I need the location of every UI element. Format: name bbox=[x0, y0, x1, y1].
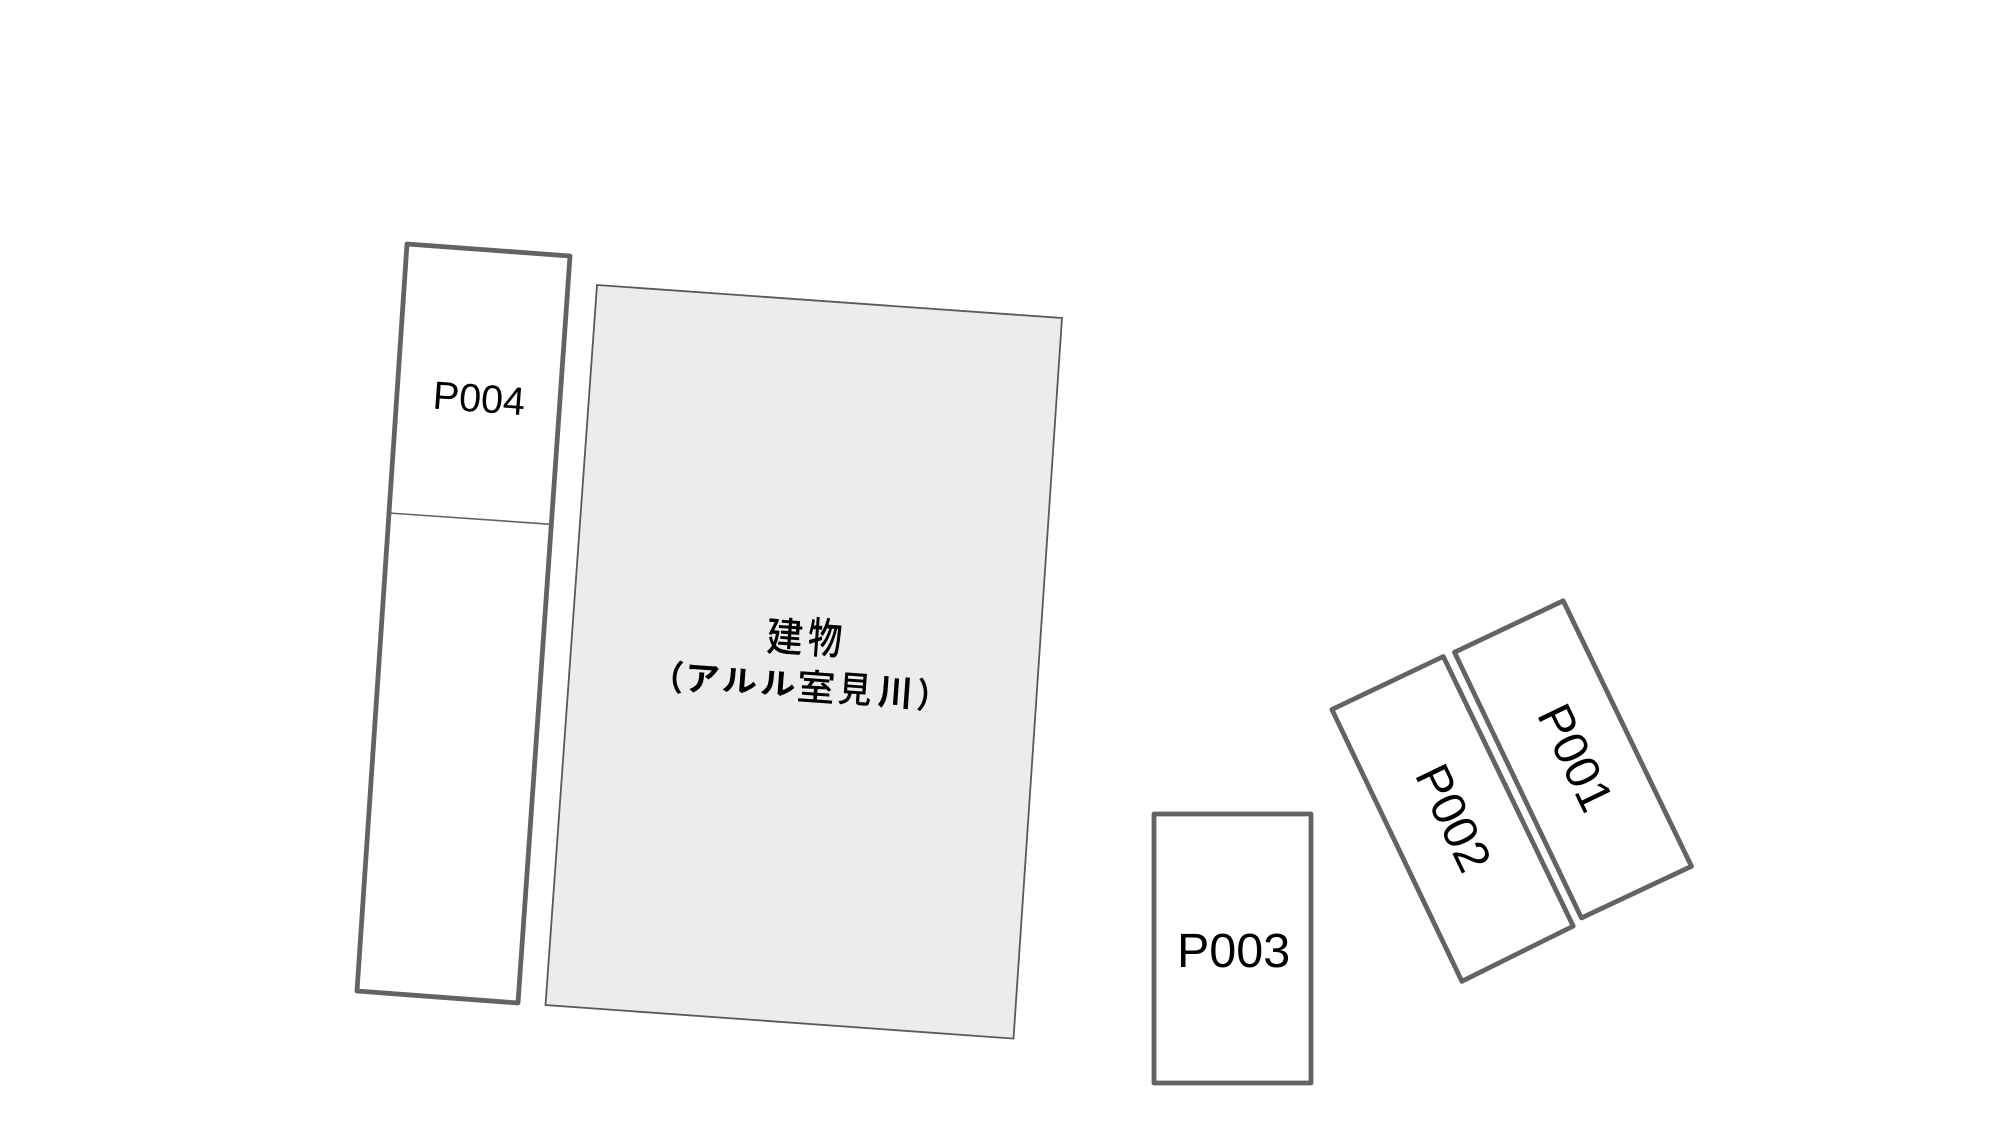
svg-text:P004: P004 bbox=[431, 374, 526, 425]
svg-text:P003: P003 bbox=[1177, 924, 1290, 978]
